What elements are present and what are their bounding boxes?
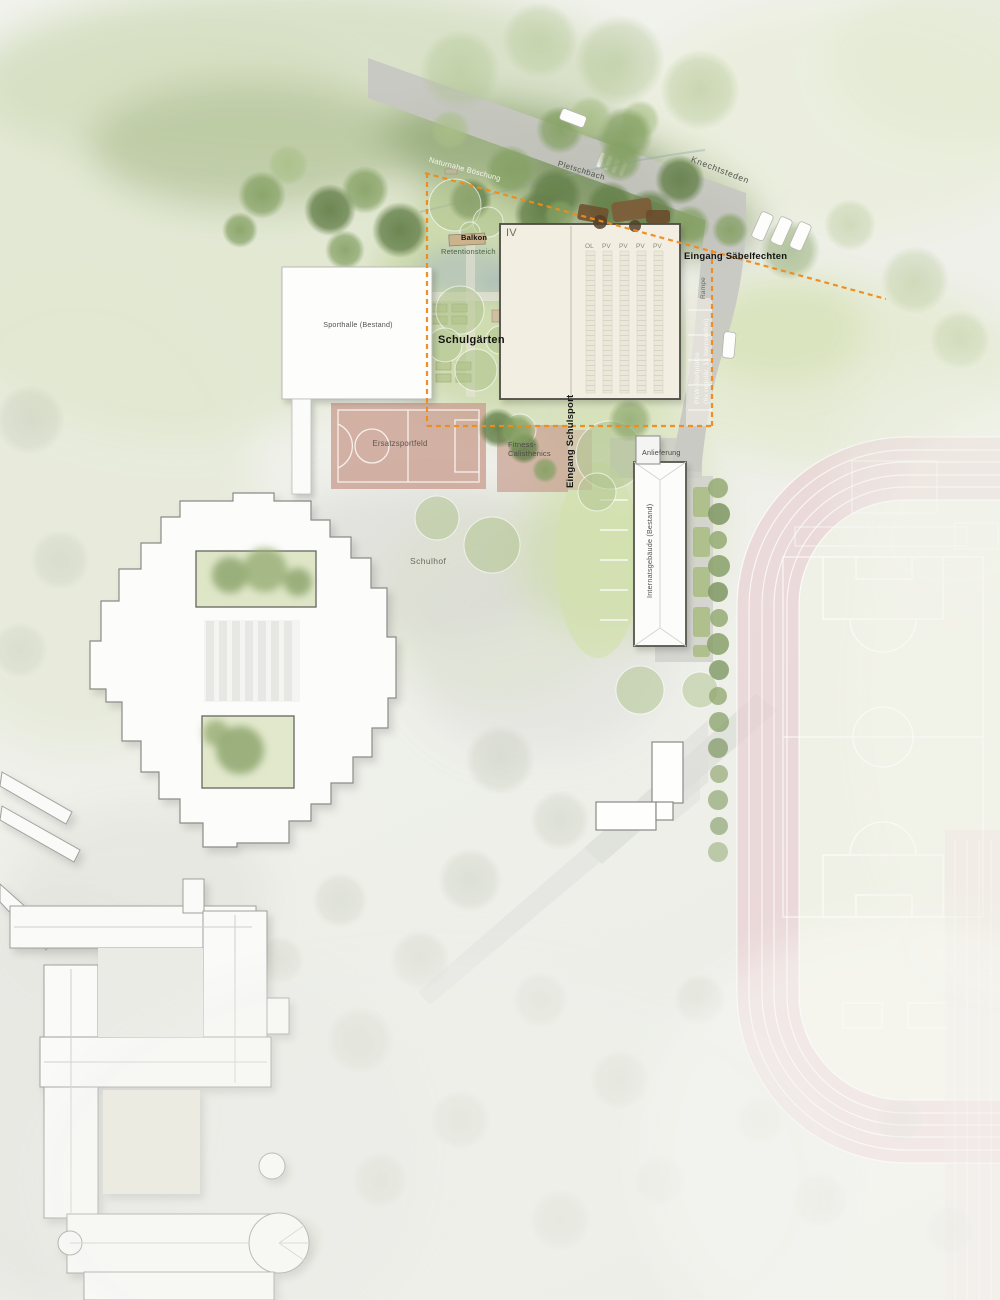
label-fitness-line2: Calisthenics xyxy=(508,449,551,458)
label-roof-strip-pv2: PV xyxy=(619,243,628,250)
label-ersatzsportfeld: Ersatzsportfeld xyxy=(345,440,455,449)
label-roof-strip-pv4: PV xyxy=(653,243,662,250)
label-roof-strip-ol: OL xyxy=(585,243,594,250)
label-anlieferung: Anlieferung xyxy=(642,449,681,457)
label-schulhof: Schulhof xyxy=(410,557,446,567)
label-eingang-saebelfechten: Eingang Säbelfechten xyxy=(684,252,787,263)
label-pkw-line2: (6x regulär, 1x barrierefrei) xyxy=(702,318,711,404)
label-hall-storeys: IV xyxy=(506,227,517,239)
label-balkon: Balkon xyxy=(461,234,487,242)
label-retentionsteich: Retentionsteich xyxy=(441,248,496,256)
label-roof-strip-pv1: PV xyxy=(602,243,611,250)
label-sporthalle-bestand: Sporthalle (Bestand) xyxy=(320,321,396,329)
label-fitness-calisthenics: Fitness- Calisthenics xyxy=(508,440,551,458)
label-fitness-line1: Fitness- xyxy=(508,440,551,449)
label-roof-strip-pv3: PV xyxy=(636,243,645,250)
site-plan-canvas xyxy=(0,0,1000,1300)
label-pkw-line1: PKW-Stellplätze xyxy=(693,318,702,404)
label-internatsgebaeude: Internatsgebäude (Bestand) xyxy=(646,504,654,598)
label-pkw-stellplaetze: PKW-Stellplätze (6x regulär, 1x barriere… xyxy=(693,318,711,404)
internat-building xyxy=(634,436,686,646)
label-schulgaerten: Schulgärten xyxy=(438,334,505,346)
site-plan: Naturnahe Böschung Pletschbach Knechtste… xyxy=(0,0,1000,1300)
label-eingang-schulsport: Eingang Schulsport xyxy=(566,395,577,488)
hedge-row xyxy=(707,478,730,862)
label-rampe: Rampe xyxy=(700,277,707,299)
